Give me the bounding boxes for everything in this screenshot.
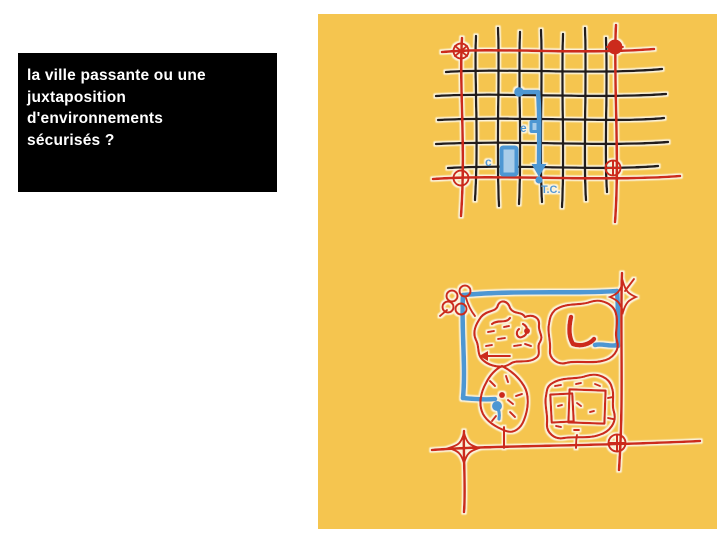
roundabout-icon-bottom-right bbox=[609, 435, 626, 452]
presentation-slide: la ville passante ou une juxtaposition d… bbox=[0, 0, 720, 540]
intersection-icon-bottom-right bbox=[606, 161, 621, 176]
entry-label: e bbox=[520, 121, 527, 135]
enclave-blob-top-left bbox=[474, 301, 541, 366]
intersection-icon-top-right bbox=[607, 40, 623, 55]
sketches-canvas: e c T.C. bbox=[318, 14, 717, 529]
enclave-blob-top-right bbox=[548, 301, 617, 364]
car-label: c bbox=[485, 155, 492, 169]
slide-question: la ville passante ou une juxtaposition d… bbox=[27, 65, 267, 151]
transit-label: T.C. bbox=[541, 184, 561, 196]
enclave-city-sketch bbox=[432, 273, 700, 512]
arrow-down-icon bbox=[532, 164, 547, 177]
street-grid bbox=[436, 28, 668, 207]
sketch-panel: e c T.C. bbox=[318, 14, 717, 529]
car-parcel-rect bbox=[502, 148, 517, 175]
grid-city-sketch: e c T.C. bbox=[433, 25, 680, 222]
enclave-blob-bottom-right bbox=[545, 375, 614, 439]
question-textbox: la ville passante ou une juxtaposition d… bbox=[18, 53, 277, 192]
entry-square-icon bbox=[530, 120, 540, 133]
enclave-internal-road bbox=[569, 317, 594, 345]
main-road-frame bbox=[432, 273, 700, 512]
